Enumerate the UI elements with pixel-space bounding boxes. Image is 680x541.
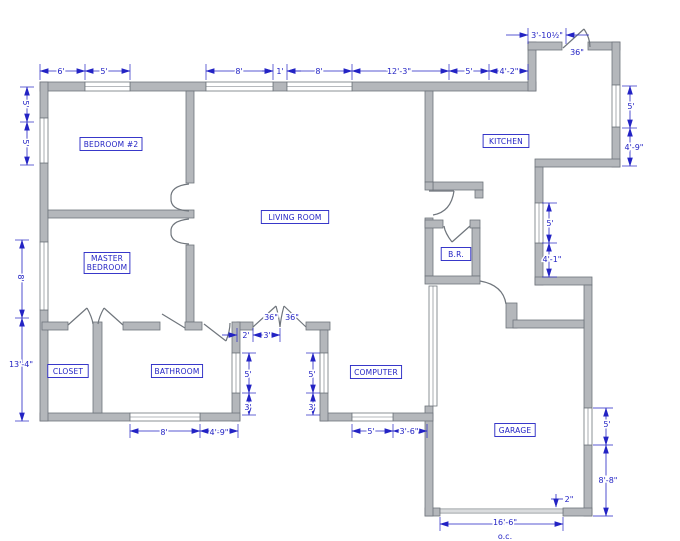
room-label-text: GARAGE <box>499 426 532 435</box>
wall <box>425 220 443 228</box>
wall <box>425 406 433 516</box>
dimension-label-top-2: 5' <box>100 67 107 76</box>
wall <box>306 322 330 330</box>
dimension-label-alcove-1: 2' <box>242 331 249 340</box>
wall <box>584 445 592 516</box>
wall <box>320 330 328 353</box>
dimension-label-alcove-left-2: 3' <box>244 403 251 412</box>
dimension-label-garage-door-width: 16'-6" <box>493 518 517 527</box>
wall <box>584 285 592 408</box>
wall <box>535 277 592 285</box>
door-swing <box>204 324 226 341</box>
door-swing <box>162 314 185 328</box>
dimension-label-right-1: 5' <box>627 102 634 111</box>
door-swing <box>452 226 470 242</box>
dimension-label-garage-right-2: 8'-8" <box>599 476 618 485</box>
wall <box>42 322 68 330</box>
wall <box>40 413 130 421</box>
room-label-bedroom-2: BEDROOM #2 <box>80 138 142 151</box>
dimension-label-top-3: 8' <box>235 67 242 76</box>
room-label-text: CLOSET <box>53 367 84 376</box>
dimension-label-top-1: 6' <box>57 67 64 76</box>
dimension-label-left-3: 8' <box>16 274 25 281</box>
wall <box>130 82 206 91</box>
wall <box>186 245 194 322</box>
wall <box>48 210 194 218</box>
floor-plan-canvas: 6'5'8'1'8'12'-3"5'4'-2"3'-10½"5'5'8'13'-… <box>0 0 680 541</box>
dimension-label-notch-2: 4'-1" <box>543 255 562 264</box>
wall <box>535 159 620 167</box>
dimension-label-top-4: 1' <box>276 67 283 76</box>
door-size-label-french-door-right-width: 36" <box>285 313 299 322</box>
walls-layer <box>40 42 620 516</box>
dimension-label-garage-door-oc: o.c. <box>498 532 512 541</box>
dimension-label-top-9: 3'-10½" <box>531 31 563 40</box>
wall <box>40 163 48 242</box>
wall <box>475 190 483 198</box>
wall <box>425 276 480 284</box>
dimension-label-garage-right-1: 5' <box>603 420 610 429</box>
wall <box>425 182 433 190</box>
wall <box>273 82 287 91</box>
door-swing <box>171 232 189 244</box>
dimension-label-bottom-3: 5' <box>367 427 374 436</box>
room-label-text: BATHROOM <box>154 367 199 376</box>
room-label-text: COMPUTER <box>354 368 398 377</box>
wall <box>563 508 592 516</box>
floor-plan-drawing: 6'5'8'1'8'12'-3"5'4'-2"3'-10½"5'5'8'13'-… <box>0 0 680 541</box>
dimension-label-notch-1: 5' <box>546 219 553 228</box>
wall <box>123 322 160 330</box>
dimension-label-alcove-right-1: 5' <box>308 370 315 379</box>
door-swing <box>171 198 189 211</box>
wall <box>352 82 536 91</box>
wall <box>185 322 202 330</box>
wall <box>232 322 240 353</box>
dimension-label-garage-door-thickness: 2" <box>565 495 574 504</box>
room-label-text: BEDROOM <box>87 263 128 272</box>
dimension-label-top-6: 12'-3" <box>387 67 411 76</box>
wall <box>186 91 194 183</box>
wall <box>513 320 584 328</box>
wall <box>535 167 543 203</box>
room-label-bathroom: BATHROOM <box>151 365 202 378</box>
dimension-label-bottom-1: 8' <box>160 428 167 437</box>
dimension-label-bottom-4: 3'-6" <box>400 427 419 436</box>
door-swing <box>68 308 87 325</box>
room-label-computer: COMPUTER <box>350 366 401 379</box>
door-swing <box>280 306 284 327</box>
room-label-br: B.R. <box>441 248 471 261</box>
door-swing <box>433 191 454 215</box>
dimension-label-left-1: 5' <box>21 100 30 107</box>
door-swing <box>171 219 189 232</box>
room-label-kitchen: KITCHEN <box>483 135 529 148</box>
room-label-text: MASTER <box>91 254 123 263</box>
wall <box>528 42 562 50</box>
wall <box>40 82 48 118</box>
door-swing <box>480 281 506 304</box>
dimension-label-left-2: 5' <box>21 139 30 146</box>
dimension-label-right-2: 4'-9" <box>625 143 644 152</box>
dimension-label-top-7: 5' <box>465 67 472 76</box>
room-label-text: B.R. <box>448 250 464 259</box>
room-label-living-room: LIVING ROOM <box>261 211 328 224</box>
room-label-text: LIVING ROOM <box>268 213 321 222</box>
dimension-label-alcove-left-1: 5' <box>244 370 251 379</box>
door-swing <box>226 323 230 341</box>
door-size-label-french-door-left-width: 36" <box>264 313 278 322</box>
door-size-label-entry-door-width: 36" <box>570 48 584 57</box>
wall <box>393 413 433 421</box>
dimension-label-top-5: 8' <box>315 67 322 76</box>
room-label-closet: CLOSET <box>48 365 88 378</box>
wall <box>200 413 240 421</box>
door-swing <box>444 226 452 242</box>
room-label-text: BEDROOM #2 <box>84 140 139 149</box>
text-labels-layer: 6'5'8'1'8'12'-3"5'4'-2"3'-10½"5'5'8'13'-… <box>9 31 644 541</box>
wall <box>433 182 483 190</box>
door-swing <box>104 308 123 325</box>
dimension-label-bottom-2: 4'-9" <box>210 428 229 437</box>
wall <box>470 220 480 228</box>
dimension-label-top-8: 4'-2" <box>500 67 519 76</box>
wall <box>612 42 620 85</box>
dimension-label-alcove-2: 3' <box>263 331 270 340</box>
dimension-label-alcove-right-2: 3' <box>308 403 315 412</box>
door-swing <box>171 184 189 198</box>
door-swing <box>87 308 93 324</box>
wall <box>472 228 480 276</box>
room-label-master-bedroom: MASTERBEDROOM <box>84 253 130 274</box>
wall <box>320 393 328 421</box>
room-label-text: KITCHEN <box>489 137 523 146</box>
wall <box>425 91 433 182</box>
wall <box>93 322 102 413</box>
dimension-label-left-4: 13'-4" <box>9 360 33 369</box>
room-label-garage: GARAGE <box>495 424 535 437</box>
